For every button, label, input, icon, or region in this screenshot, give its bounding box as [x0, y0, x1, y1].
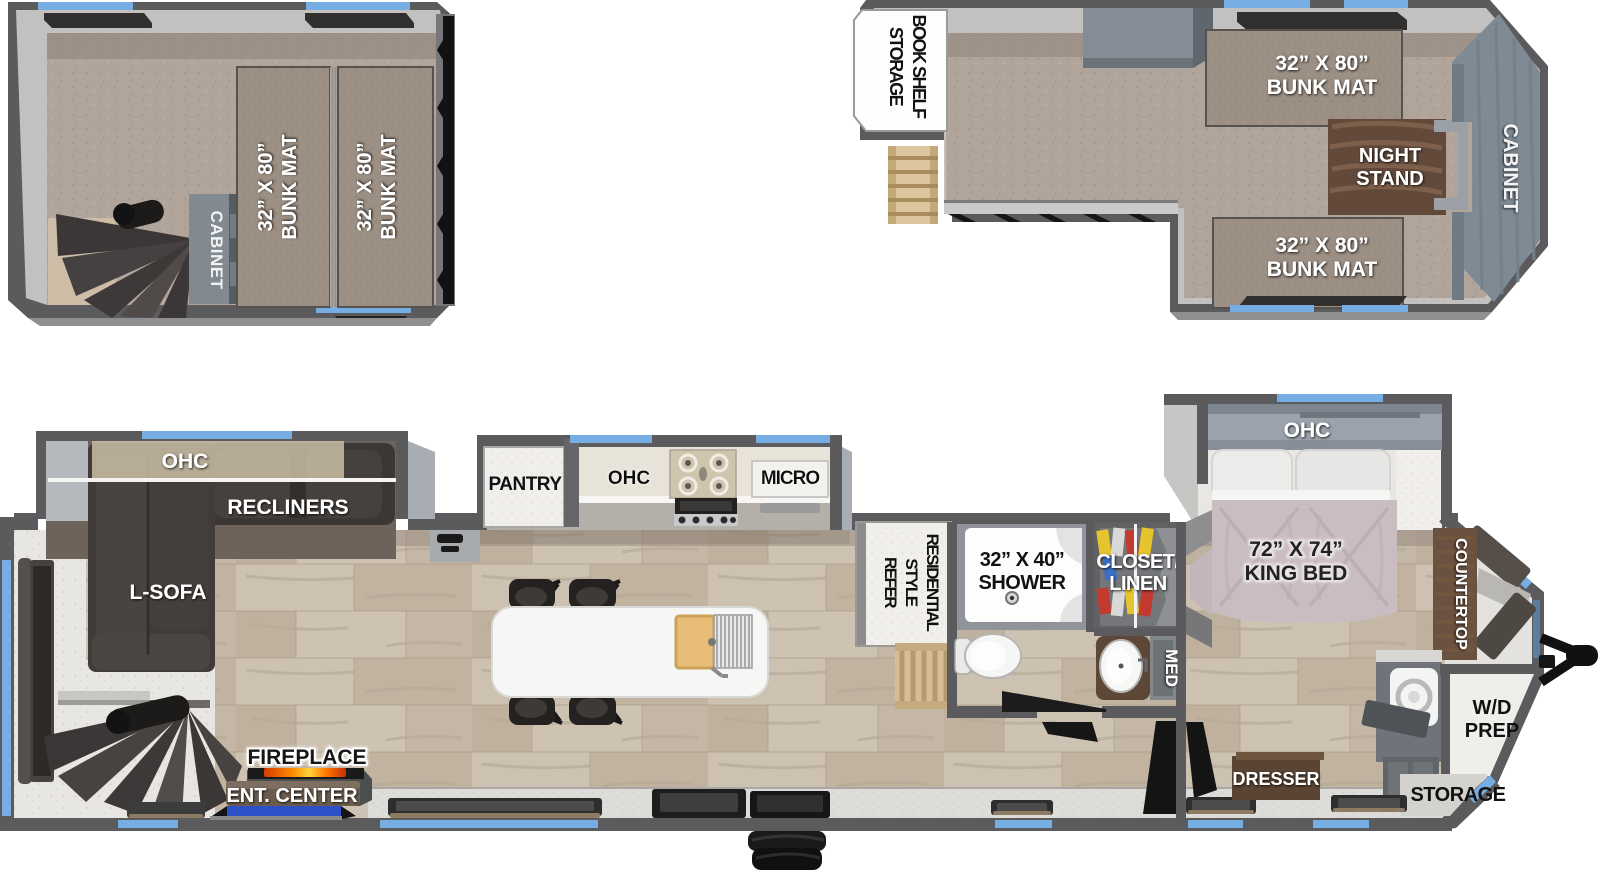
svg-text:KING BED: KING BED [1245, 562, 1348, 585]
svg-text:72” X 74”: 72” X 74” [1249, 538, 1342, 561]
svg-text:PREP: PREP [1465, 720, 1519, 742]
svg-text:COUNTERTOP: COUNTERTOP [1452, 538, 1469, 650]
svg-text:DRESSER: DRESSER [1232, 769, 1319, 789]
svg-text:32” X 80”: 32” X 80” [354, 143, 376, 232]
svg-text:CABINET: CABINET [1499, 124, 1521, 213]
svg-text:REFER: REFER [881, 557, 900, 608]
svg-text:32” X 80”: 32” X 80” [1275, 234, 1368, 257]
svg-text:ENT. CENTER: ENT. CENTER [226, 785, 358, 807]
svg-text:OHC: OHC [608, 468, 651, 489]
svg-text:BUNK MAT: BUNK MAT [1267, 258, 1378, 281]
svg-text:STORAGE: STORAGE [886, 27, 906, 107]
svg-text:SHOWER: SHOWER [979, 572, 1067, 594]
svg-text:LINEN: LINEN [1109, 573, 1167, 595]
svg-text:BUNK MAT: BUNK MAT [378, 134, 400, 239]
svg-text:BOOK SHELF: BOOK SHELF [909, 14, 929, 119]
svg-text:OHC: OHC [1284, 419, 1331, 442]
svg-text:CLOSET/: CLOSET/ [1096, 551, 1180, 573]
svg-text:BUNK MAT: BUNK MAT [279, 134, 301, 239]
svg-text:STYLE: STYLE [902, 558, 921, 606]
svg-text:STAND: STAND [1356, 168, 1423, 190]
svg-text:STORAGE: STORAGE [1410, 784, 1505, 806]
svg-text:MICRO: MICRO [761, 468, 820, 489]
svg-text:32” X 80”: 32” X 80” [255, 143, 277, 232]
svg-text:MED: MED [1162, 649, 1181, 687]
svg-text:RESIDENTIAL: RESIDENTIAL [923, 534, 942, 632]
svg-text:BUNK MAT: BUNK MAT [1267, 76, 1378, 99]
svg-text:CABINET: CABINET [207, 210, 226, 289]
svg-text:32” X 40”: 32” X 40” [980, 549, 1064, 571]
svg-text:NIGHT: NIGHT [1359, 145, 1421, 167]
svg-text:L-SOFA: L-SOFA [130, 581, 207, 604]
svg-text:W/D: W/D [1473, 697, 1512, 719]
svg-text:RECLINERS: RECLINERS [227, 496, 348, 519]
svg-text:FIREPLACE: FIREPLACE [247, 746, 366, 769]
svg-text:OHC: OHC [162, 450, 209, 473]
svg-text:PANTRY: PANTRY [489, 474, 563, 495]
svg-text:32” X 80”: 32” X 80” [1275, 52, 1368, 75]
